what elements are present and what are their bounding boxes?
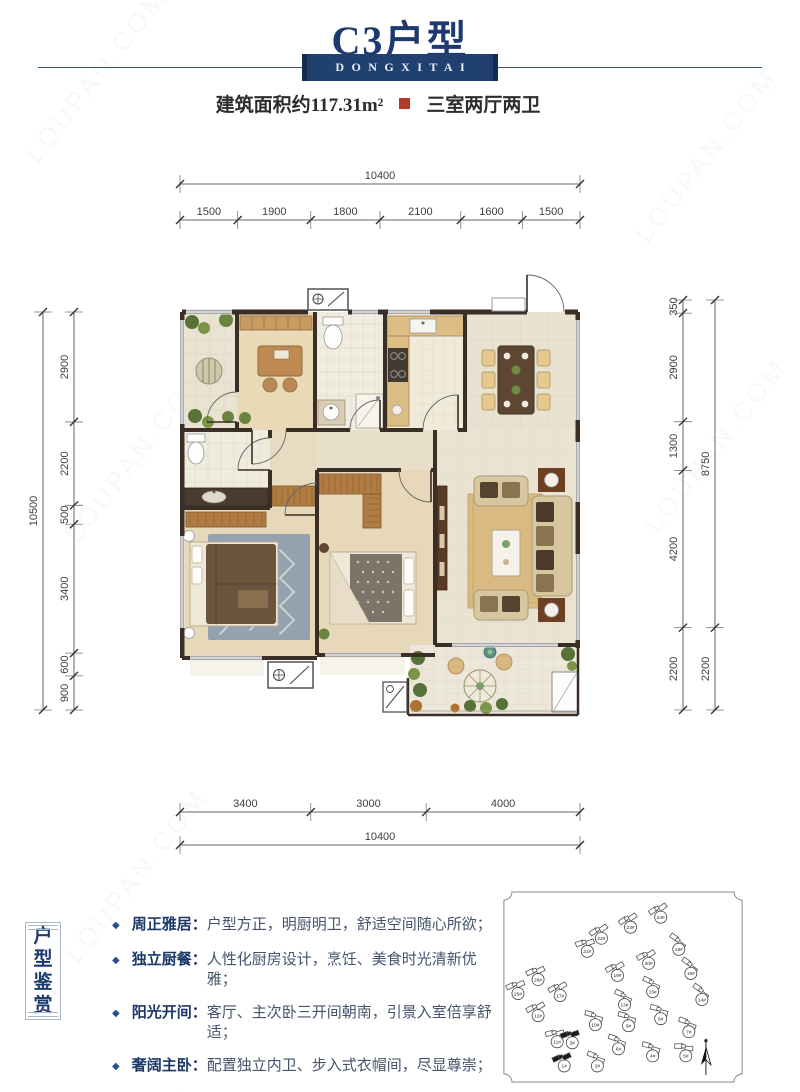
building-label: 19# — [613, 973, 621, 979]
building-label: 12# — [534, 1013, 542, 1019]
building-label: 17# — [556, 993, 564, 999]
ac-unit-icon — [268, 662, 313, 688]
feature-text: 人性化厨房设计，烹饪、美食时光清新优雅； — [207, 950, 504, 990]
ac-unit-icon — [308, 289, 348, 310]
building-label: 18# — [675, 947, 683, 953]
feature-label: 阳光开间： — [132, 1003, 207, 1023]
diamond-bullet-icon: ◆ — [112, 951, 120, 971]
dim-label: 3400 — [233, 798, 257, 810]
dim-label: 2100 — [408, 206, 432, 218]
dim-label: 1800 — [333, 206, 357, 218]
building-label: 23# — [627, 925, 635, 931]
building-label: 16# — [687, 971, 695, 977]
dim-label: 1600 — [479, 206, 503, 218]
feature-item: ◆奢阔主卧：配置独立内卫、步入式衣帽间，尽显尊崇； — [112, 1056, 504, 1078]
dim-label: 3400 — [59, 576, 71, 600]
floor-plan — [180, 270, 580, 720]
building-label: 10# — [591, 1022, 599, 1028]
dim-label: 2900 — [59, 355, 71, 379]
building-label: 20# — [645, 961, 653, 967]
dim-label: 1500 — [539, 206, 563, 218]
features-list: ◆周正雅居：户型方正，明厨明卫，舒适空间随心所欲；◆独立厨餐：人性化厨房设计，烹… — [112, 915, 504, 1092]
dim-label: 2200 — [700, 657, 712, 681]
entry-door-arc — [527, 275, 564, 312]
building-label: 13# — [620, 1002, 628, 1008]
building-label: 7# — [686, 1030, 692, 1036]
dim-label: 1900 — [262, 206, 286, 218]
dim-label: 1300 — [668, 434, 680, 458]
building-label: 6# — [616, 1047, 622, 1053]
dim-label: 2200 — [59, 451, 71, 475]
feature-item: ◆阳光开间：客厅、主次卧三开间朝南，引景入室倍享舒适； — [112, 1003, 504, 1043]
building-label: 25# — [514, 991, 522, 997]
building-label: 22# — [597, 936, 605, 942]
building-label: 2# — [595, 1064, 601, 1070]
building-label: 24# — [657, 915, 665, 921]
building-label: 21# — [583, 949, 591, 955]
site-plan: 24#23#22#21#18#16#14#7#20#19#15#13#26#25… — [498, 888, 748, 1086]
feature-label: 独立厨餐： — [132, 950, 207, 970]
building-label: 11# — [553, 1040, 561, 1046]
section-title-box: 户型鉴赏 — [25, 922, 61, 1020]
dim-label: 10500 — [28, 496, 40, 527]
dim-label: 4200 — [668, 537, 680, 561]
feature-text: 客厅、主次卧三开间朝南，引景入室倍享舒适； — [207, 1003, 504, 1043]
dim-label: 600 — [59, 655, 71, 673]
ac-unit-icon — [383, 682, 407, 712]
master-bedroom-furniture — [184, 531, 311, 641]
dim-label: 10400 — [365, 831, 396, 843]
feature-text: 配置独立内卫、步入式衣帽间，尽显尊崇； — [207, 1056, 492, 1076]
building-label: 4# — [650, 1054, 656, 1060]
dim-label: 900 — [59, 684, 71, 702]
dim-label: 3000 — [356, 798, 380, 810]
dim-label: 2900 — [668, 355, 680, 379]
building-label: 15# — [649, 989, 657, 995]
building-label: 8# — [658, 1016, 664, 1022]
diamond-bullet-icon: ◆ — [112, 1004, 120, 1024]
building-label: 3# — [570, 1041, 576, 1047]
feature-label: 奢阔主卧： — [132, 1056, 207, 1076]
feature-text: 户型方正，明厨明卫，舒适空间随心所欲； — [207, 915, 492, 935]
building-label: 14# — [698, 997, 706, 1003]
feature-item: ◆周正雅居：户型方正，明厨明卫，舒适空间随心所欲； — [112, 915, 504, 937]
dim-label: 4000 — [491, 798, 515, 810]
dim-label: 1500 — [197, 206, 221, 218]
dim-label: 8750 — [700, 452, 712, 476]
diamond-bullet-icon: ◆ — [112, 1057, 120, 1077]
diamond-bullet-icon: ◆ — [112, 916, 120, 936]
feature-item: ◆独立厨餐：人性化厨房设计，烹饪、美食时光清新优雅； — [112, 950, 504, 990]
building-label: 5# — [683, 1054, 689, 1060]
stove-icon — [388, 348, 408, 382]
feature-label: 周正雅居： — [132, 915, 207, 935]
building-label: 1# — [562, 1064, 568, 1070]
floorplan-page: LOUPAN.COM LOUPAN.COM LOUPAN.COM LOUPAN.… — [0, 0, 800, 1092]
dining-set — [482, 346, 550, 414]
building-label: 9# — [626, 1024, 632, 1030]
building-label: 26# — [534, 977, 542, 983]
dim-label: 10400 — [365, 170, 396, 182]
section-title: 户型鉴赏 — [32, 925, 54, 1018]
dim-label: 2200 — [668, 657, 680, 681]
dim-label: 500 — [59, 506, 71, 524]
entry-landing — [492, 298, 525, 311]
